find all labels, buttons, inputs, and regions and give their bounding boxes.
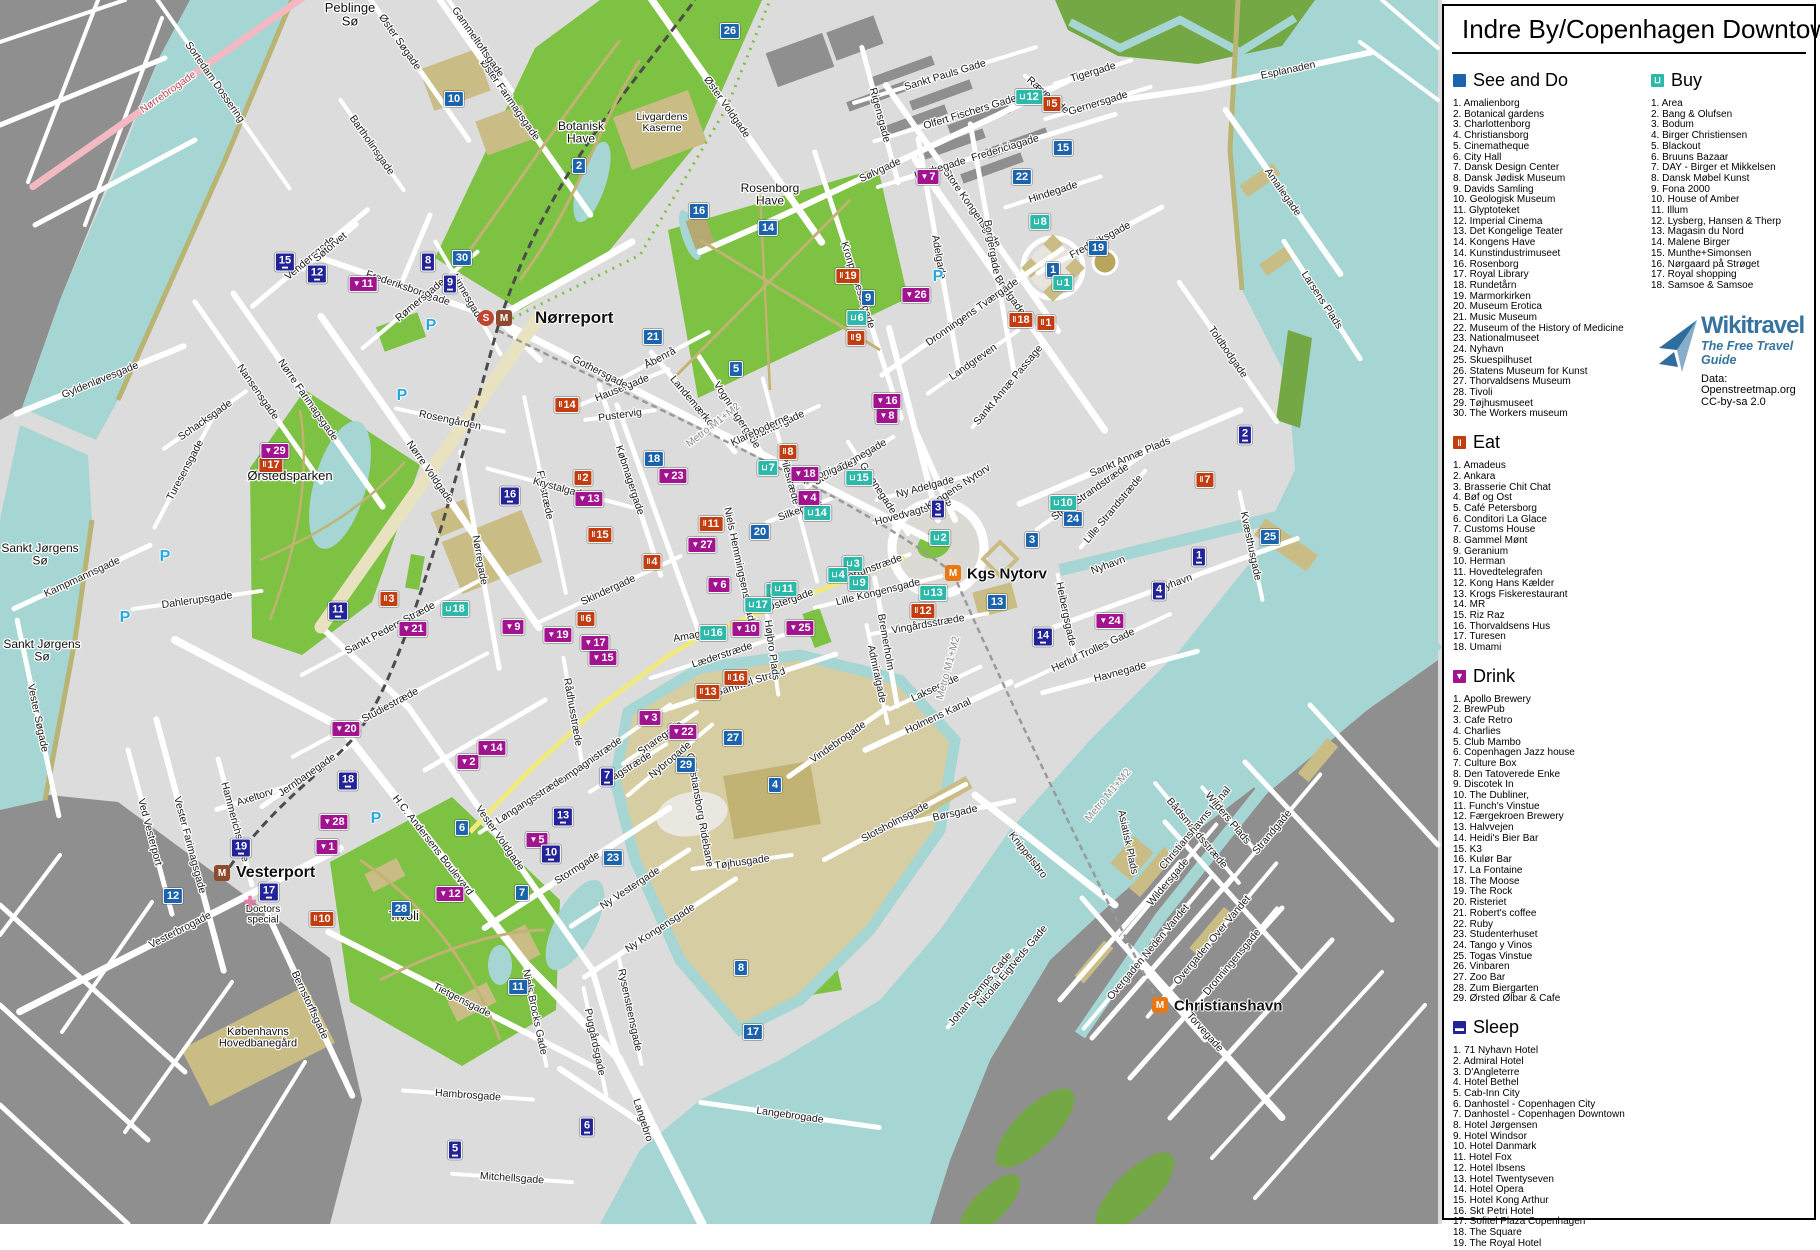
see-icon (1453, 74, 1466, 87)
map-marker-see-11[interactable]: 11 (508, 979, 528, 995)
map-marker-see-27[interactable]: 27 (723, 730, 743, 746)
map-marker-buy-14[interactable]: ⊔14 (803, 505, 831, 521)
eat-icon: ‖ (839, 272, 843, 280)
map-marker-sleep-5[interactable]: 5▬ (448, 1141, 462, 1160)
eat-icon: ‖ (699, 688, 703, 696)
map-marker-drink-24[interactable]: ▼24 (1095, 613, 1124, 629)
bed-icon: ▬ (1040, 641, 1046, 646)
drink-icon: ▼ (642, 714, 650, 722)
map-marker-see-10[interactable]: 10 (444, 91, 464, 107)
map-marker-eat-16[interactable]: ‖16 (723, 670, 748, 686)
buy-icon: ⊔ (1019, 93, 1025, 101)
map-marker-sleep-10[interactable]: 10▬ (541, 845, 561, 864)
map-canvas: EsplanadenAmaliegadeLarsens PladsToldbod… (0, 0, 1442, 1224)
legend-item: 14. Heidi's Bier Bar (1453, 834, 1649, 845)
street-label: Laksegade (909, 672, 961, 705)
legend-list-buy: 1. Area2. Bang & Olufsen3. Bodum4. Birge… (1651, 99, 1814, 292)
map-marker-see-26[interactable]: 26 (720, 23, 740, 39)
eat-icon: ‖ (591, 531, 595, 539)
drink-icon: ▼ (920, 173, 928, 181)
map-marker-sleep-2[interactable]: 2▬ (1238, 426, 1252, 445)
street-label: Sankt Annæ Plads (1088, 435, 1172, 480)
metro-icon: M (496, 310, 512, 326)
bed-icon: ▬ (335, 615, 341, 620)
drink-icon: ▼ (578, 495, 586, 503)
legend-list-see: 1. Amalienborg2. Botanical gardens3. Cha… (1453, 99, 1649, 420)
drink-icon: ▼ (323, 818, 331, 826)
map-marker-sleep-16[interactable]: 16▬ (500, 487, 520, 506)
eat-icon: ‖ (914, 607, 918, 615)
drink-icon: ▼ (439, 890, 447, 898)
map-marker-see-21[interactable]: 21 (643, 329, 663, 345)
bed-icon: ▬ (548, 858, 554, 863)
bed-icon: ▬ (1196, 561, 1202, 566)
street-label: Toldbodgade (1206, 324, 1250, 380)
map-marker-drink-10[interactable]: ▼10 (731, 621, 760, 637)
legend-item: 19. The Royal Hotel (1453, 1239, 1649, 1250)
map-marker-eat-11[interactable]: ‖11 (699, 516, 724, 532)
map-marker-sleep-17[interactable]: 17▬ (259, 883, 279, 902)
drink-icon: ▼ (460, 758, 468, 766)
map-marker-eat-3[interactable]: ‖3 (379, 591, 398, 607)
drink-icon: ▼ (264, 447, 272, 455)
legend-section-label: Eat (1473, 432, 1500, 453)
map-title: Indre By/Copenhagen Downtown (1452, 6, 1806, 54)
map-marker-eat-12[interactable]: ‖12 (910, 603, 935, 619)
map-marker-see-7[interactable]: 7 (515, 885, 529, 901)
data-attribution: Data: Openstreetmap.org CC-by-sa 2.0 (1701, 374, 1814, 409)
legend-item: 18. The Square (1453, 1228, 1649, 1239)
map-marker-eat-13[interactable]: ‖13 (695, 684, 720, 700)
street-label: Axeltorv (235, 785, 275, 808)
buy-icon: ⊔ (1056, 279, 1062, 287)
map-marker-drink-17[interactable]: ▼17 (580, 635, 609, 651)
eat-icon: ‖ (850, 334, 854, 342)
city-map: EsplanadenAmaliegadeLarsens PladsToldbod… (0, 0, 1442, 1224)
bed-icon: ▬ (238, 852, 244, 857)
map-marker-eat-10[interactable]: ‖10 (309, 911, 334, 927)
buy-icon: ⊔ (831, 571, 837, 579)
map-marker-drink-8[interactable]: ▼8 (875, 408, 898, 424)
map-marker-see-18[interactable]: 18 (644, 451, 664, 467)
bed-icon: ▬ (1242, 439, 1248, 444)
drink-icon: ▼ (584, 639, 592, 647)
street-label: Gernersgade (1067, 88, 1129, 117)
drink-icon: ▼ (879, 412, 887, 420)
buy-icon: ⊔ (807, 509, 813, 517)
map-marker-buy-1[interactable]: ⊔1 (1052, 275, 1073, 291)
map-marker-see-24[interactable]: 24 (1063, 511, 1083, 527)
eat-icon: ‖ (1046, 100, 1050, 108)
drink-icon: ▼ (1453, 670, 1466, 683)
eat-icon: ‖ (1012, 316, 1016, 324)
map-marker-buy-13[interactable]: ⊔13 (919, 585, 947, 601)
map-marker-see-14[interactable]: 14 (758, 220, 778, 236)
map-marker-buy-12[interactable]: ⊔12 (1015, 89, 1043, 105)
drink-icon: ▼ (1099, 617, 1107, 625)
map-marker-sleep-9[interactable]: 9▬ (443, 275, 457, 294)
station-vesterport[interactable]: M (214, 865, 230, 881)
street-label: Bartholinsgade (347, 113, 397, 177)
drink-icon: ▼ (319, 843, 327, 851)
map-marker-eat-5[interactable]: ‖5 (1042, 96, 1061, 112)
map-marker-drink-26[interactable]: ▼26 (901, 287, 930, 303)
map-marker-drink-3[interactable]: ▼3 (638, 710, 661, 726)
map-marker-eat-9[interactable]: ‖9 (846, 330, 865, 346)
map-marker-see-30[interactable]: 30 (452, 250, 472, 266)
map-marker-eat-18[interactable]: ‖18 (1008, 312, 1033, 328)
map-marker-eat-15[interactable]: ‖15 (587, 527, 612, 543)
eat-icon: ‖ (383, 595, 387, 603)
map-marker-drink-9[interactable]: ▼9 (501, 619, 524, 635)
map-marker-eat-7[interactable]: ‖7 (1195, 472, 1214, 488)
street-label: Hambrosgade (435, 1087, 502, 1104)
map-marker-see-6[interactable]: 6 (455, 820, 469, 836)
metro-icon: M (214, 865, 230, 881)
legend-item: 12. Hotel Ibsens (1453, 1164, 1649, 1175)
station-n-rreport[interactable]: SM (478, 310, 512, 326)
map-marker-buy-18[interactable]: ⊔18 (441, 601, 469, 617)
map-marker-eat-17[interactable]: ‖17 (258, 457, 283, 473)
map-marker-sleep-3[interactable]: 3▬ (931, 500, 945, 519)
street-label: Rysensteensgade (615, 968, 644, 1053)
legend-list-sleep: 1. 71 Nyhavn Hotel2. Admiral Hotel3. D'A… (1453, 1046, 1649, 1249)
legend-item: 2. Ankara (1453, 472, 1649, 483)
drink-icon: ▼ (662, 472, 670, 480)
legend-item: 12. Kong Hans Kælder (1453, 579, 1649, 590)
legend-item: 2. Admiral Hotel (1453, 1057, 1649, 1068)
street-label: Skindergade (579, 572, 638, 608)
legend-item: 18. Samsoe & Samsoe (1651, 281, 1814, 292)
map-marker-drink-19[interactable]: ▼19 (543, 627, 572, 643)
buy-icon: ⊔ (1651, 74, 1664, 87)
bed-icon: ▬ (345, 785, 351, 790)
street-label: Mitchellsgade (480, 1170, 545, 1186)
buy-icon: ⊔ (703, 629, 709, 637)
wikitravel-arrow-icon (1651, 314, 1701, 378)
bed-icon: ▬ (935, 513, 941, 518)
buy-icon: ⊔ (850, 314, 856, 322)
map-marker-see-3[interactable]: 3 (1025, 532, 1039, 548)
map-marker-sleep-18[interactable]: 18▬ (338, 772, 358, 791)
map-marker-sleep-12[interactable]: 12▬ (307, 265, 327, 284)
map-marker-drink-22[interactable]: ▼22 (668, 724, 697, 740)
map-marker-see-12[interactable]: 12 (163, 888, 183, 904)
map-marker-eat-14[interactable]: ‖14 (554, 397, 579, 413)
bed-icon: ▬ (266, 896, 272, 901)
map-marker-see-2[interactable]: 2 (572, 158, 586, 174)
street-label: Jernbanegade (276, 751, 338, 799)
map-marker-sleep-14[interactable]: 14▬ (1033, 628, 1053, 647)
drink-icon: ▼ (335, 725, 343, 733)
legend-item: 14. Kunstindustrimuseet (1453, 249, 1649, 260)
street-label: Åbenrå (642, 344, 678, 371)
eat-icon: ‖ (1040, 319, 1044, 327)
buy-icon: ⊔ (761, 464, 767, 472)
map-marker-drink-1[interactable]: ▼1 (315, 839, 338, 855)
map-marker-drink-15[interactable]: ▼15 (588, 650, 617, 666)
map-marker-see-22[interactable]: 22 (1012, 169, 1032, 185)
map-marker-see-29[interactable]: 29 (676, 757, 696, 773)
drink-icon: ▼ (672, 728, 680, 736)
map-marker-buy-9[interactable]: ⊔9 (848, 575, 869, 591)
map-marker-drink-27[interactable]: ▼27 (687, 537, 716, 553)
map-marker-see-13[interactable]: 13 (987, 594, 1007, 610)
map-marker-buy-11[interactable]: ⊔11 (771, 581, 798, 597)
map-marker-eat-4[interactable]: ‖4 (642, 554, 661, 570)
sleep-icon: ▬ (1453, 1021, 1466, 1034)
map-marker-eat-19[interactable]: ‖19 (835, 268, 860, 284)
drink-icon: ▼ (547, 631, 555, 639)
map-marker-drink-2[interactable]: ▼2 (456, 754, 479, 770)
map-marker-drink-21[interactable]: ▼21 (398, 621, 427, 637)
map-marker-buy-8[interactable]: ⊔8 (1029, 214, 1050, 230)
legend-section-label: See and Do (1473, 70, 1568, 91)
map-marker-see-16[interactable]: 16 (689, 203, 709, 219)
legend-item: 5. Café Petersborg (1453, 504, 1649, 515)
map-marker-sleep-19[interactable]: 19▬ (231, 839, 251, 858)
eat-icon: ‖ (782, 448, 786, 456)
bed-icon: ▬ (425, 266, 431, 271)
drink-icon: ▼ (691, 541, 699, 549)
legend-column-left: See and Do1. Amalienborg2. Botanical gar… (1444, 58, 1649, 1218)
station-kgs-nytorv[interactable]: M (945, 565, 961, 581)
street-label: Hindegade (1027, 179, 1079, 206)
map-marker-buy-10[interactable]: ⊔10 (1049, 495, 1077, 511)
eat-icon: ‖ (313, 915, 317, 923)
map-marker-eat-8[interactable]: ‖8 (778, 444, 797, 460)
drink-icon: ▼ (529, 836, 537, 844)
bed-icon: ▬ (282, 266, 288, 271)
drink-icon: ▼ (876, 397, 884, 405)
eat-icon: ‖ (580, 615, 584, 623)
drink-icon: ▼ (505, 623, 513, 631)
bed-icon: ▬ (452, 1154, 458, 1159)
eat-icon: ‖ (1199, 476, 1203, 484)
eat-icon: ‖ (558, 401, 562, 409)
map-marker-eat-6[interactable]: ‖6 (576, 611, 595, 627)
metro-icon: M (945, 565, 961, 581)
legend-section-header-eat: ‖Eat (1453, 432, 1649, 453)
map-marker-see-23[interactable]: 23 (603, 850, 623, 866)
map-marker-drink-13[interactable]: ▼13 (574, 491, 603, 507)
map-marker-see-4[interactable]: 4 (768, 777, 782, 793)
drink-icon: ▼ (789, 624, 797, 632)
station-christianshavn[interactable]: M (1152, 997, 1168, 1013)
map-marker-see-20[interactable]: 20 (750, 524, 770, 540)
map-marker-sleep-1[interactable]: 1▬ (1192, 548, 1206, 567)
legend-item: 25. Skuespilhuset (1453, 356, 1649, 367)
bed-icon: ▬ (507, 500, 513, 505)
legend-list-eat: 1. Amadeus2. Ankara3. Brasserie Chit Cha… (1453, 461, 1649, 654)
legend-item: 21. Robert's coffee (1453, 909, 1649, 920)
legend-column-right: ⊔Buy1. Area2. Bang & Olufsen3. Bodum4. B… (1649, 58, 1814, 1218)
map-marker-sleep-15[interactable]: 15▬ (275, 253, 295, 272)
map-marker-sleep-11[interactable]: 11▬ (328, 602, 348, 621)
wikitravel-logo: Wikitravel The Free Travel Guide Data: O… (1651, 314, 1814, 409)
legend-item: 17. Sofitel Plaza Copenhagen (1453, 1217, 1649, 1228)
legend-columns: See and Do1. Amalienborg2. Botanical gar… (1444, 58, 1814, 1218)
bed-icon: ▬ (1156, 595, 1162, 600)
map-marker-sleep-7[interactable]: 7▬ (600, 768, 614, 787)
map-marker-drink-11[interactable]: ▼11 (349, 276, 378, 292)
map-marker-drink-28[interactable]: ▼28 (319, 814, 348, 830)
bed-icon: ▬ (447, 288, 453, 293)
buy-icon: ⊔ (933, 534, 939, 542)
street-label: Øster Søgade (376, 12, 423, 73)
street-label: Dahlerupsgade (161, 589, 233, 611)
map-marker-drink-29[interactable]: ▼29 (260, 443, 289, 459)
wikitravel-wordmark: Wikitravel (1701, 314, 1814, 338)
map-marker-buy-17[interactable]: ⊔17 (744, 597, 772, 613)
drink-icon: ▼ (735, 625, 743, 633)
map-marker-drink-16[interactable]: ▼16 (872, 393, 901, 409)
eat-icon: ‖ (262, 461, 266, 469)
legend-item: 30. The Workers museum (1453, 409, 1649, 420)
eat-icon: ‖ (577, 474, 581, 482)
map-marker-see-9[interactable]: 9 (861, 290, 875, 306)
map-marker-drink-4[interactable]: ▼4 (797, 490, 820, 506)
legend-item: 18. Umami (1453, 643, 1649, 654)
bed-icon: ▬ (584, 1131, 590, 1136)
map-marker-drink-18[interactable]: ▼18 (790, 466, 819, 482)
map-marker-see-5[interactable]: 5 (729, 361, 743, 377)
legend-section-header-sleep: ▬Sleep (1453, 1017, 1649, 1038)
map-marker-eat-1[interactable]: ‖1 (1036, 315, 1055, 331)
s-train-icon: S (478, 310, 494, 326)
map-marker-buy-4[interactable]: ⊔4 (827, 567, 848, 583)
map-marker-drink-7[interactable]: ▼7 (916, 169, 939, 185)
legend-section-header-buy: ⊔Buy (1651, 70, 1814, 91)
map-marker-see-19[interactable]: 19 (1088, 240, 1108, 256)
drink-icon: ▼ (481, 744, 489, 752)
street-label: Adelgade (929, 234, 949, 280)
buy-icon: ⊔ (748, 601, 754, 609)
map-marker-buy-16[interactable]: ⊔16 (699, 625, 727, 641)
legend-section-label: Sleep (1473, 1017, 1519, 1038)
area-label: PeblingeSø (325, 0, 376, 29)
eat-icon: ‖ (1453, 436, 1466, 449)
legend-list-drink: 1. Apollo Brewery2. BrewPub3. Cafe Retro… (1453, 695, 1649, 1005)
map-marker-drink-6[interactable]: ▼6 (707, 577, 730, 593)
street-label: Tigergade (1069, 60, 1118, 85)
map-marker-sleep-8[interactable]: 8▬ (421, 253, 435, 272)
area-label: Doctorsspecial (246, 904, 280, 926)
eat-icon: ‖ (727, 674, 731, 682)
map-marker-see-8[interactable]: 8 (734, 960, 748, 976)
map-marker-drink-20[interactable]: ▼20 (331, 721, 360, 737)
drink-icon: ▼ (592, 654, 600, 662)
legend-item: 4. Charlies (1453, 727, 1649, 738)
legend-section-header-drink: ▼Drink (1453, 666, 1649, 687)
legend-item: 29. Ørsted Ølbar & Cafe (1453, 994, 1649, 1005)
eat-icon: ‖ (646, 558, 650, 566)
legend-panel: Indre By/Copenhagen Downtown See and Do1… (1442, 4, 1816, 1220)
map-marker-buy-6[interactable]: ⊔6 (846, 310, 867, 326)
wikitravel-tagline: The Free Travel Guide (1701, 339, 1814, 367)
street-label: Havnegade (1093, 659, 1148, 685)
map-marker-drink-25[interactable]: ▼25 (785, 620, 814, 636)
buy-icon: ⊔ (923, 589, 929, 597)
bed-icon: ▬ (560, 821, 566, 826)
map-marker-buy-15[interactable]: ⊔15 (845, 470, 873, 486)
area-label: KøbenhavnsHovedbanegård (219, 1026, 297, 1050)
street-label: Heibergsgade (1053, 581, 1078, 648)
legend-section-label: Drink (1473, 666, 1515, 687)
buy-icon: ⊔ (852, 579, 858, 587)
map-marker-sleep-6[interactable]: 6▬ (580, 1118, 594, 1137)
map-marker-see-28[interactable]: 28 (391, 901, 411, 917)
map-marker-sleep-13[interactable]: 13▬ (553, 808, 573, 827)
legend-item: 5. Cinematheque (1453, 142, 1649, 153)
buy-icon: ⊔ (1053, 499, 1059, 507)
eat-icon: ‖ (703, 520, 707, 528)
map-marker-buy-2[interactable]: ⊔2 (929, 530, 950, 546)
legend-section-header-see: See and Do (1453, 70, 1649, 91)
drink-icon: ▼ (711, 581, 719, 589)
buy-icon: ⊔ (849, 474, 855, 482)
metro-icon: M (1152, 997, 1168, 1013)
drink-icon: ▼ (905, 291, 913, 299)
area-label: LivgardensKaserne (636, 111, 687, 134)
legend-item: 15. Munthe+Simonsen (1651, 249, 1814, 260)
map-marker-see-25[interactable]: 25 (1260, 529, 1280, 545)
bed-icon: ▬ (314, 278, 320, 283)
drink-icon: ▼ (353, 280, 361, 288)
legend-section-label: Buy (1671, 70, 1702, 91)
legend-item: 5. Blackout (1651, 142, 1814, 153)
buy-icon: ⊔ (1033, 218, 1039, 226)
drink-icon: ▼ (402, 625, 410, 633)
buy-icon: ⊔ (775, 585, 781, 593)
drink-icon: ▼ (794, 470, 802, 478)
map-marker-drink-23[interactable]: ▼23 (658, 468, 687, 484)
map-marker-eat-2[interactable]: ‖2 (573, 470, 592, 486)
map-marker-see-15[interactable]: 15 (1053, 140, 1073, 156)
street-label: Turesensgade (164, 438, 206, 503)
page: EsplanadenAmaliegadeLarsens PladsToldbod… (0, 0, 1820, 1224)
street-label: Metro M1+M2 (934, 635, 962, 701)
map-marker-sleep-4[interactable]: 4▬ (1152, 582, 1166, 601)
drink-icon: ▼ (801, 494, 809, 502)
map-marker-buy-7[interactable]: ⊔7 (757, 460, 778, 476)
map-marker-see-17[interactable]: 17 (743, 1024, 763, 1040)
bed-icon: ▬ (604, 781, 610, 786)
map-marker-drink-12[interactable]: ▼12 (435, 886, 464, 902)
map-marker-drink-14[interactable]: ▼14 (477, 740, 506, 756)
buy-icon: ⊔ (445, 605, 451, 613)
